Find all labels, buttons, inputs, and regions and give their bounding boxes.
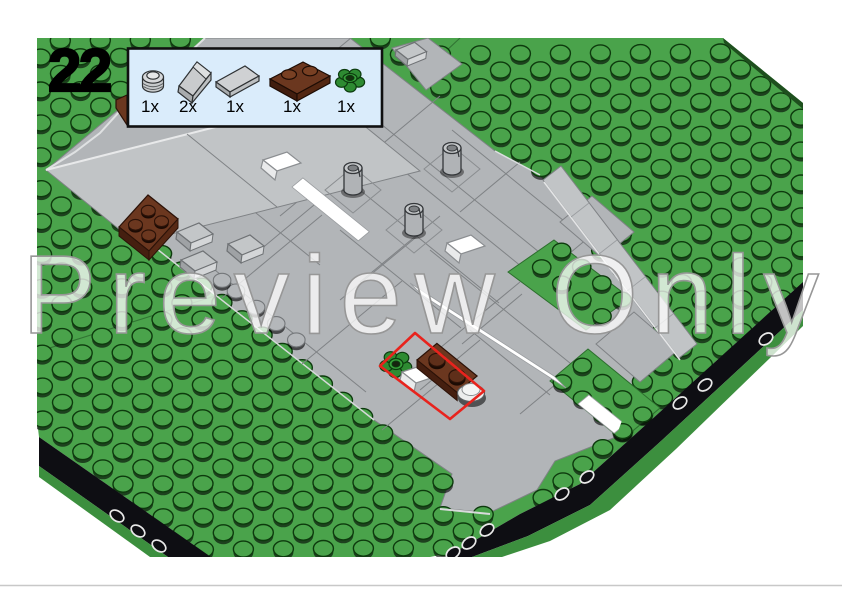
svg-text:Preview Only: Preview Only: [22, 233, 832, 357]
svg-text:1x: 1x: [141, 97, 159, 116]
svg-text:1x: 1x: [337, 97, 355, 116]
svg-text:2x: 2x: [179, 97, 197, 116]
svg-text:22: 22: [48, 37, 110, 104]
svg-text:1x: 1x: [226, 97, 244, 116]
svg-text:1x: 1x: [283, 97, 301, 116]
